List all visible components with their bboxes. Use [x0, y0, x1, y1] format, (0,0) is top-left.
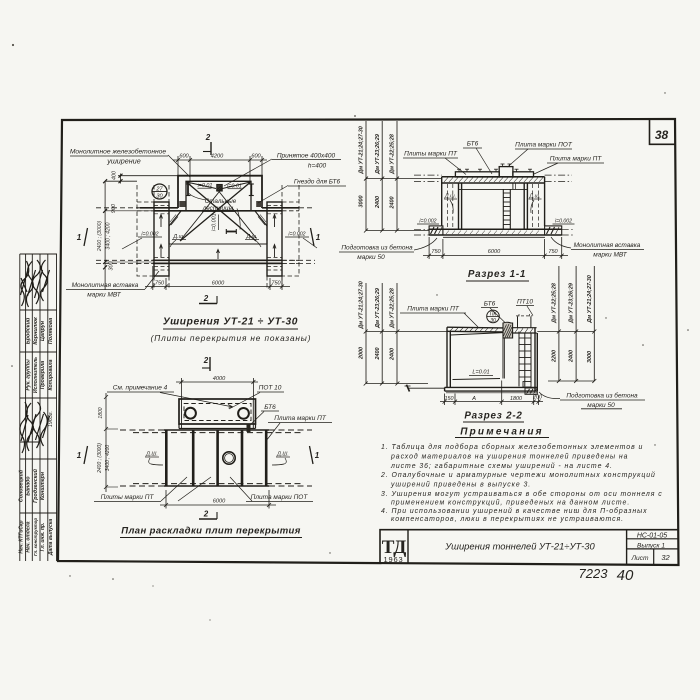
svg-text:Корнилюк: Корнилюк	[33, 316, 39, 345]
svg-text:Д.ш.: Д.ш.	[172, 234, 184, 240]
svg-text:Дм УТ-22;25;28: Дм УТ-22;25;28	[390, 288, 396, 329]
svg-text:2: 2	[203, 356, 209, 365]
svg-text:Д.ш.: Д.ш.	[528, 194, 540, 200]
svg-text:6000: 6000	[488, 249, 501, 255]
svg-text:40: 40	[617, 567, 634, 584]
svg-text:ПТ10: ПТ10	[517, 299, 533, 306]
svg-text:Плита марки ПОТ: Плита марки ПОТ	[251, 494, 309, 501]
svg-text:6000: 6000	[213, 499, 226, 505]
svg-text:Бродский: Бродский	[25, 317, 32, 344]
svg-text:См. примечание 4: См. примечание 4	[113, 385, 168, 392]
svg-text:150: 150	[445, 396, 454, 402]
svg-text:Соловецкий: Соловецкий	[18, 469, 25, 502]
svg-text:Разрез 1-1: Разрез 1-1	[468, 269, 526, 280]
svg-text:ПК: ПК	[490, 311, 498, 317]
svg-text:2000: 2000	[359, 347, 365, 360]
svg-text:Плита марки ПТ: Плита марки ПТ	[407, 306, 460, 313]
svg-text:Д.Ш.: Д.Ш.	[145, 452, 158, 458]
svg-text:Плита марки ПТ: Плита марки ПТ	[274, 415, 327, 422]
svg-text:30: 30	[490, 318, 496, 324]
svg-text:2400 ; (3000): 2400 ; (3000)	[97, 221, 103, 253]
svg-text:Д.ш.: Д.ш.	[444, 194, 456, 200]
svg-text:30: 30	[156, 194, 163, 200]
svg-text:600: 600	[179, 154, 189, 160]
svg-text:1800: 1800	[510, 396, 522, 402]
svg-text:Лист: Лист	[631, 555, 649, 562]
svg-text:2: 2	[203, 294, 209, 303]
svg-text:Полякова: Полякова	[48, 318, 54, 344]
svg-text:Нач. КТГиСкр: Нач. КТГиСкр	[19, 520, 25, 553]
svg-text:(Плиты перекрытия не показа: (Плиты перекрытия не показаны)	[151, 334, 312, 343]
svg-text:Дм УТ-23;26;29: Дм УТ-23;26;29	[375, 134, 381, 175]
svg-text:6000: 6000	[212, 281, 225, 287]
svg-text:900: 900	[111, 204, 117, 213]
svg-text:Дм УТ-23;26;29: Дм УТ-23;26;29	[375, 288, 381, 329]
svg-text:750: 750	[155, 281, 165, 287]
svg-text:Монолитное железобетонное: Монолитное железобетонное	[70, 148, 167, 156]
svg-text:i=0.002: i=0.002	[419, 219, 436, 225]
svg-text:Примечания: Примечания	[460, 427, 544, 438]
svg-text:Подготовка из бетона: Подготовка из бетона	[341, 244, 413, 252]
svg-text:2400 ; (3000): 2400 ; (3000)	[97, 443, 103, 474]
svg-text:Цапрун: Цапрун	[40, 320, 46, 341]
svg-text:Плита марки ПТ: Плита марки ПТ	[550, 156, 603, 163]
svg-text:300: 300	[109, 262, 115, 271]
svg-text:Дм УТ-22;25;28: Дм УТ-22;25;28	[390, 134, 396, 175]
svg-text:Уширения УТ-21 ÷ УТ-30: Уширения УТ-21 ÷ УТ-30	[163, 317, 298, 328]
svg-text:Исполнитель: Исполнитель	[33, 357, 39, 393]
svg-text:Плиты марки ПТ: Плиты марки ПТ	[101, 494, 155, 501]
svg-text:1: 1	[77, 451, 82, 460]
svg-text:3000: 3000	[359, 196, 365, 208]
svg-text:А: А	[471, 396, 476, 402]
svg-text:План раскладки плит перекры: План раскладки плит перекрытия	[121, 526, 301, 537]
svg-text:БТ6: БТ6	[484, 301, 496, 308]
svg-text:Уширения тоннелей УТ-21÷УТ-30: Уширения тоннелей УТ-21÷УТ-30	[444, 541, 595, 552]
svg-text:7223: 7223	[579, 566, 609, 581]
svg-text:4. При использовании уширени: 4. При использовании уширений в качестве…	[381, 507, 648, 515]
svg-text:750: 750	[548, 249, 558, 255]
svg-text:Нач. отдела: Нач. отдела	[26, 521, 32, 552]
svg-text:БТ6: БТ6	[264, 404, 276, 411]
svg-text:марки 50: марки 50	[357, 254, 385, 261]
svg-text:2200: 2200	[552, 350, 558, 363]
svg-text:Выпуск 1: Выпуск 1	[637, 542, 665, 549]
svg-text:i=0.002: i=0.002	[141, 232, 158, 238]
svg-text:1963: 1963	[384, 555, 404, 564]
svg-text:Гнездо для БТ6: Гнездо для БТ6	[294, 178, 341, 186]
svg-text:1: 1	[315, 451, 320, 460]
svg-text:НС-01-05: НС-01-05	[637, 532, 667, 539]
svg-text:3. Уширения могут устраивать: 3. Уширения могут устраиваться в обе сто…	[381, 490, 663, 498]
svg-text:ПОТ 10: ПОТ 10	[259, 385, 282, 392]
svg-text:750: 750	[271, 281, 281, 287]
svg-text:Дм УТ-21;24;27-30: Дм УТ-21;24;27-30	[587, 275, 593, 324]
svg-text:Стальные: Стальные	[205, 198, 237, 205]
svg-text:4000: 4000	[213, 376, 226, 382]
svg-text:Дм УТ-21;24;27-30: Дм УТ-21;24;27-30	[359, 126, 365, 175]
svg-text:2400: 2400	[375, 348, 381, 361]
svg-text:Д.Ш.: Д.Ш.	[276, 452, 289, 458]
svg-text:Рук. группы: Рук. группы	[26, 359, 32, 391]
svg-text:1800: 1800	[98, 407, 104, 418]
svg-text:Дм УТ-21;24;27-30: Дм УТ-21;24;27-30	[359, 281, 365, 330]
svg-text:Разрез 2-2: Разрез 2-2	[464, 411, 522, 422]
svg-text:32: 32	[661, 553, 670, 562]
svg-text:600: 600	[251, 154, 261, 160]
svg-text:Гл. конструктор: Гл. конструктор	[33, 518, 38, 556]
svg-text:i=0.001: i=0.001	[212, 213, 218, 231]
svg-text:1. Таблица для подбора сбор: 1. Таблица для подбора сборных железобет…	[381, 443, 643, 451]
svg-text:750: 750	[431, 249, 441, 255]
svg-text:компенсаторов, люки в перекр: компенсаторов, люки в перекрытиях не уст…	[391, 516, 624, 523]
svg-text:200: 200	[532, 395, 542, 401]
svg-text:Копировала: Копировала	[48, 359, 54, 390]
svg-text:Д.ш.: Д.ш.	[245, 234, 257, 240]
svg-text:2. Опалубочные и арматурные: 2. Опалубочные и арматурные чертежи моно…	[380, 471, 656, 479]
svg-text:27: 27	[155, 187, 163, 193]
svg-text:Дата выпуска: Дата выпуска	[48, 519, 54, 557]
svg-text:3400 ; 4200: 3400 ; 4200	[106, 222, 112, 249]
svg-text:уширение: уширение	[106, 157, 141, 166]
svg-text:Дм УТ-23;26;29: Дм УТ-23;26;29	[569, 283, 575, 324]
svg-text:Конштерн: Конштерн	[40, 471, 46, 500]
svg-text:марки МВТ: марки МВТ	[593, 252, 627, 259]
svg-text:Плиты марки ПТ: Плиты марки ПТ	[404, 151, 458, 158]
svg-text:Гл. инж. пр.: Гл. инж. пр.	[40, 523, 46, 552]
svg-text:применением конструкций, прив: применением конструкций, приведеных на д…	[391, 498, 630, 506]
svg-text:Плита марки ПОТ: Плита марки ПОТ	[515, 142, 573, 149]
svg-text:1: 1	[316, 233, 321, 242]
svg-text:уширений приведены в выпуск: уширений приведены в выпуске 3.	[390, 481, 531, 489]
svg-text:Подготовка из бетона: Подготовка из бетона	[566, 392, 638, 400]
svg-text:2: 2	[203, 510, 209, 519]
svg-text:h=400: h=400	[308, 163, 327, 170]
svg-text:2400: 2400	[569, 350, 575, 363]
svg-text:марки 50: марки 50	[587, 402, 615, 409]
svg-text:4200: 4200	[211, 154, 224, 160]
svg-text:Принятое 400х400: Принятое 400х400	[277, 153, 336, 160]
svg-text:марки МВТ: марки МВТ	[87, 292, 121, 299]
svg-text:3000: 3000	[587, 351, 593, 363]
svg-text:Монолитная вставка: Монолитная вставка	[574, 242, 641, 249]
svg-text:i=0.002: i=0.002	[288, 232, 305, 238]
svg-text:2400: 2400	[390, 197, 396, 210]
svg-text:Банадо: Банадо	[26, 476, 32, 496]
svg-text:расход материалов на уширен: расход материалов на уширения тоннелей п…	[390, 452, 628, 460]
svg-text:2: 2	[205, 133, 211, 142]
svg-text:2400: 2400	[390, 348, 396, 361]
svg-text:L=0.01: L=0.01	[472, 370, 489, 376]
svg-text:38: 38	[655, 128, 669, 142]
svg-text:листе 36; габаритные схемы: листе 36; габаритные схемы уширений - на…	[390, 462, 613, 470]
svg-text:1: 1	[77, 233, 82, 242]
svg-text:Гродзенский: Гродзенский	[32, 468, 39, 502]
svg-text:Дм УТ-22;25;28: Дм УТ-22;25;28	[552, 283, 558, 324]
svg-text:400: 400	[112, 171, 118, 180]
svg-text:1963г.: 1963г.	[48, 411, 54, 427]
svg-text:Проверила: Проверила	[40, 361, 46, 390]
svg-text:3400 ; 4200: 3400 ; 4200	[105, 445, 111, 472]
svg-text:i=0.002: i=0.002	[555, 219, 572, 225]
svg-text:БТ6: БТ6	[467, 141, 479, 148]
svg-text:Монолитная вставка: Монолитная вставка	[72, 282, 139, 289]
svg-text:2400: 2400	[375, 196, 381, 209]
